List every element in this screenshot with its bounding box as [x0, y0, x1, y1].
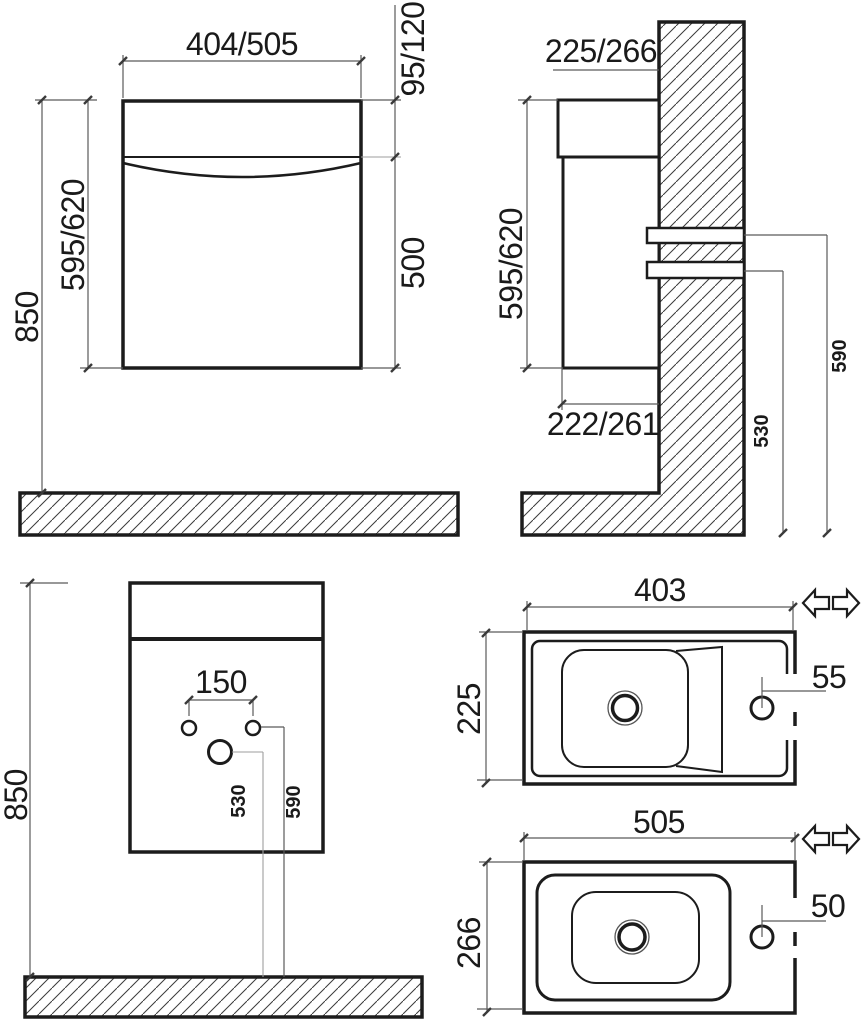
side-view: 225/266 595/620 222/261 590 530 — [493, 22, 851, 537]
arrow-right-icon — [833, 590, 859, 616]
rear-hole-height-label: 590 — [283, 785, 305, 818]
front-top-height-label: 95/120 — [395, 2, 431, 97]
arrow-right-icon — [833, 826, 859, 852]
border-gap — [789, 898, 801, 958]
front-door-height-label: 500 — [395, 237, 431, 289]
arrow-left-icon — [803, 590, 829, 616]
sink-large-depth-label: 266 — [451, 917, 487, 969]
reversible-arrows-icon — [803, 826, 859, 852]
floor-front — [20, 493, 458, 535]
sink-small-width-label: 403 — [634, 572, 686, 608]
cabinet-side-ledge — [558, 100, 659, 157]
sink-large-width-label: 505 — [633, 804, 685, 840]
rear-hole-spacing-label: 150 — [195, 664, 247, 700]
front-view: 404/505 95/120 500 595/620 850 — [9, 2, 458, 535]
mounting-bracket-upper — [647, 228, 744, 243]
side-bottom-depth-label: 222/261 — [547, 406, 659, 442]
cabinet-side-body — [563, 157, 659, 368]
side-bracket-top-label: 590 — [829, 339, 851, 372]
front-width-label: 404/505 — [186, 26, 298, 62]
cabinet-front — [123, 101, 361, 368]
front-height-label: 595/620 — [55, 179, 91, 291]
rear-wall-height-label: 850 — [0, 769, 34, 821]
rear-view: 150 530 590 850 — [0, 579, 422, 1017]
border-gap — [783, 674, 801, 740]
mounting-bracket-lower — [647, 262, 744, 278]
drawing-svg: 404/505 95/120 500 595/620 850 225/266 5… — [0, 0, 863, 1033]
sink-small-top-view: 403 225 55 — [451, 572, 859, 787]
sink-small-depth-label: 225 — [451, 683, 487, 735]
technical-drawing: 404/505 95/120 500 595/620 850 225/266 5… — [0, 0, 863, 1033]
sink-small-faucet-offset-label: 55 — [812, 659, 847, 695]
reversible-arrows-icon — [803, 590, 859, 616]
front-wall-height-label: 850 — [9, 291, 45, 343]
sink-small-outline — [524, 632, 795, 784]
side-depth-label: 225/266 — [545, 33, 657, 69]
side-height-label: 595/620 — [493, 208, 529, 320]
arrow-left-icon — [803, 826, 829, 852]
side-bracket-bottom-label: 530 — [751, 414, 773, 447]
sink-large-faucet-offset-label: 50 — [811, 888, 846, 924]
rear-drain-height-label: 530 — [228, 784, 250, 817]
sink-large-top-view: 505 266 50 — [451, 804, 859, 1016]
sink-large-outline — [524, 862, 795, 1013]
floor-rear — [25, 977, 422, 1017]
